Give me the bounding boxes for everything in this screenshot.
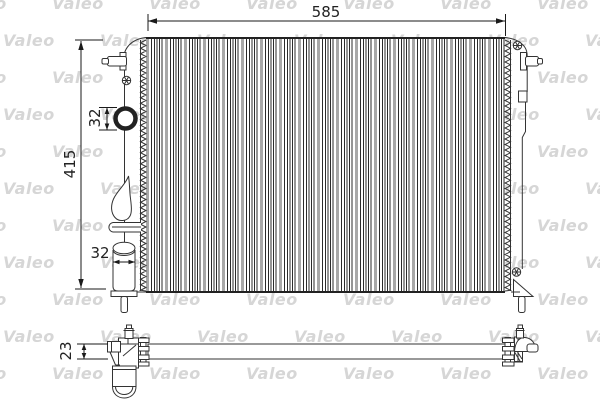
profile-depth-label: 23 [58, 340, 74, 362]
valeo-watermark-text: Valeo [52, 0, 104, 13]
valeo-watermark-text: Valeo [585, 179, 600, 198]
valeo-watermark-text: Valeo [537, 142, 589, 161]
valeo-watermark-text: Valeo [0, 68, 7, 87]
valeo-watermark-text: Valeo [0, 364, 7, 383]
valeo-watermark-text: Valeo [537, 290, 589, 309]
valeo-watermark-text: Valeo [488, 327, 540, 346]
valeo-watermark-text: Valeo [197, 327, 249, 346]
valeo-watermark-text: Valeo [537, 0, 589, 13]
valeo-watermark-text: Valeo [3, 253, 55, 272]
valeo-watermark-text: Valeo [343, 364, 395, 383]
valeo-watermark-text: Valeo [294, 327, 346, 346]
valeo-watermark-text: Valeo [0, 290, 7, 309]
valeo-watermark-text: Valeo [0, 216, 7, 235]
valeo-watermark-text: Valeo [0, 142, 7, 161]
valeo-watermark-text: Valeo [100, 105, 152, 124]
valeo-watermark-text: Valeo [585, 105, 600, 124]
valeo-watermark-text: Valeo [52, 216, 104, 235]
valeo-watermark-text: Valeo [3, 105, 55, 124]
valeo-watermark-text: Valeo [52, 364, 104, 383]
valeo-watermark-text: Valeo [3, 327, 55, 346]
valeo-watermark-text: Valeo [100, 31, 152, 50]
valeo-watermark-text: Valeo [343, 0, 395, 13]
valeo-watermark-text: Valeo [537, 364, 589, 383]
valeo-watermark-text: Valeo [149, 0, 201, 13]
radiator-technical-drawing: ValeoValeoValeoValeoValeoValeoValeoValeo… [0, 0, 600, 400]
valeo-watermark-text: Valeo [585, 253, 600, 272]
valeo-watermark-text: Valeo [537, 216, 589, 235]
valeo-watermark-text: Valeo [585, 31, 600, 50]
valeo-watermark-text: Valeo [52, 68, 104, 87]
valeo-watermark-text: Valeo [246, 0, 298, 13]
height-dimension-label: 415 [62, 146, 78, 182]
valeo-watermark-text: Valeo [100, 179, 152, 198]
valeo-watermark-text: Valeo [440, 364, 492, 383]
valeo-watermark-text: Valeo [52, 290, 104, 309]
inlet-diameter-label: 32 [87, 107, 103, 129]
filler-neck-diameter-label: 32 [89, 245, 111, 261]
valeo-watermark-text: Valeo [100, 327, 152, 346]
width-dimension-label: 585 [304, 4, 348, 20]
core-fins [146, 37, 505, 293]
valeo-watermark-text: Valeo [585, 327, 600, 346]
valeo-watermark-text: Valeo [537, 68, 589, 87]
valeo-watermark-text: Valeo [0, 0, 7, 13]
valeo-watermark-text: Valeo [246, 364, 298, 383]
valeo-watermark-text: Valeo [149, 364, 201, 383]
valeo-watermark-text: Valeo [3, 31, 55, 50]
valeo-watermark-text: Valeo [3, 179, 55, 198]
valeo-watermark-text: Valeo [440, 0, 492, 13]
valeo-watermark-text: Valeo [391, 327, 443, 346]
